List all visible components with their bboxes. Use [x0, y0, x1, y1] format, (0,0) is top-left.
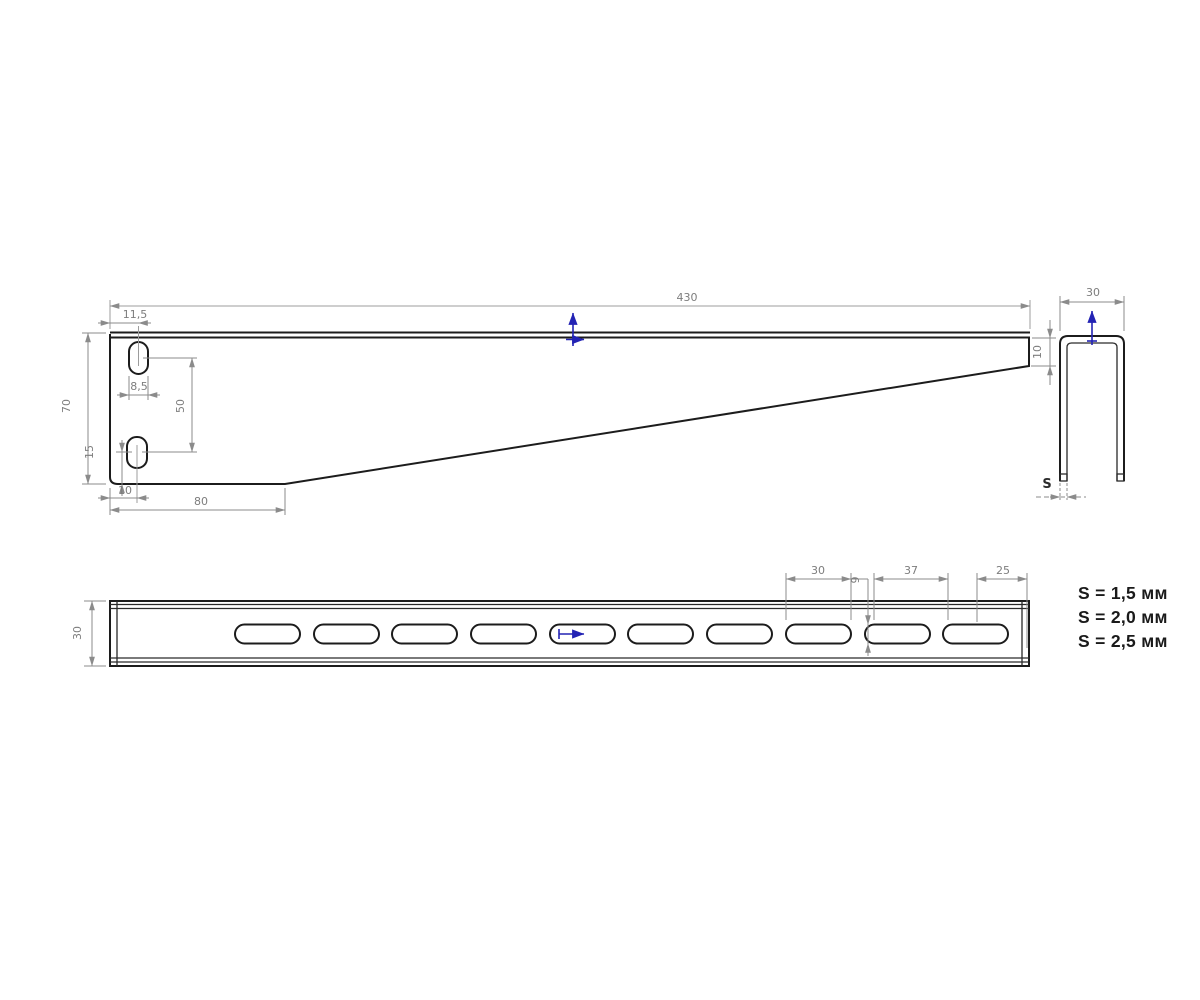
dim-slot-width-side-label: 8,5 [130, 380, 148, 393]
thickness-option-2: S = 2,0 мм [1078, 607, 1168, 627]
dim-slot-length: 30 [786, 564, 851, 620]
slot-6 [628, 625, 693, 644]
dim-top-slot-width: 9 [849, 577, 868, 657]
end-outer-contour [1060, 336, 1124, 481]
dim-slot-offset-top: 11,5 [98, 308, 151, 323]
dim-slot-edge-offset-label: 10 [118, 484, 132, 497]
dim-side-height-label: 70 [60, 399, 73, 413]
side-body-contour [110, 334, 1029, 484]
end-datum-marker [1087, 311, 1097, 345]
slot-10 [943, 625, 1008, 644]
technical-drawing-canvas: 430 11,5 70 8,5 [0, 0, 1200, 1000]
thickness-option-1: S = 1,5 мм [1078, 583, 1168, 603]
dim-slot-offset-top-label: 11,5 [123, 308, 148, 321]
dim-slot-center-distance: 50 [142, 358, 197, 452]
dim-slot-pitch: 37 [874, 564, 948, 620]
thickness-option-3: S = 2,5 мм [1078, 631, 1168, 651]
slot-8 [786, 625, 851, 644]
slot-3 [392, 625, 457, 644]
dim-slot-width-side: 8,5 [117, 376, 160, 400]
side-datum-marker [566, 313, 584, 346]
dim-slot-length-label: 30 [811, 564, 825, 577]
dim-slot-offset-bottom-label: 15 [83, 445, 96, 459]
top-datum-marker [559, 629, 584, 639]
top-slots [235, 625, 1008, 644]
dim-end-offset: 25 [977, 564, 1027, 648]
dim-top-height-label: 30 [71, 626, 84, 640]
slot-1 [235, 625, 300, 644]
dim-slot-pitch-label: 37 [904, 564, 918, 577]
slot-9 [865, 625, 930, 644]
dim-side-length-label: 430 [677, 291, 698, 304]
end-inner-contour [1067, 343, 1117, 481]
dim-base-length-label: 80 [194, 495, 208, 508]
dim-slot-edge-offset: 10 [98, 484, 149, 503]
top-view: 30 30 9 37 25 [71, 564, 1029, 666]
dim-end-offset-label: 25 [996, 564, 1010, 577]
slot-4 [471, 625, 536, 644]
dim-top-slot-width-label: 9 [849, 577, 862, 584]
dim-side-height: 70 [60, 333, 106, 484]
dim-tip-height-label: 10 [1031, 345, 1044, 359]
dim-slot-center-distance-label: 50 [174, 399, 187, 413]
slot-2 [314, 625, 379, 644]
thickness-symbol-label: S [1042, 477, 1051, 492]
dim-base-length: 80 [110, 488, 285, 515]
end-right-leg-foot [1117, 474, 1124, 481]
dim-end-width-label: 30 [1086, 286, 1100, 299]
end-view: 30 S [1036, 286, 1124, 500]
dim-tip-height: 10 [1031, 320, 1056, 385]
slot-7 [707, 625, 772, 644]
bracket-drawing: 430 11,5 70 8,5 [0, 0, 1200, 1000]
thickness-table: S = 1,5 мм S = 2,0 мм S = 2,5 мм [1078, 583, 1168, 651]
side-view: 430 11,5 70 8,5 [60, 291, 1056, 515]
dim-top-height: 30 [71, 601, 106, 666]
dim-side-length: 430 [110, 291, 1030, 329]
end-left-leg-foot [1060, 474, 1067, 481]
